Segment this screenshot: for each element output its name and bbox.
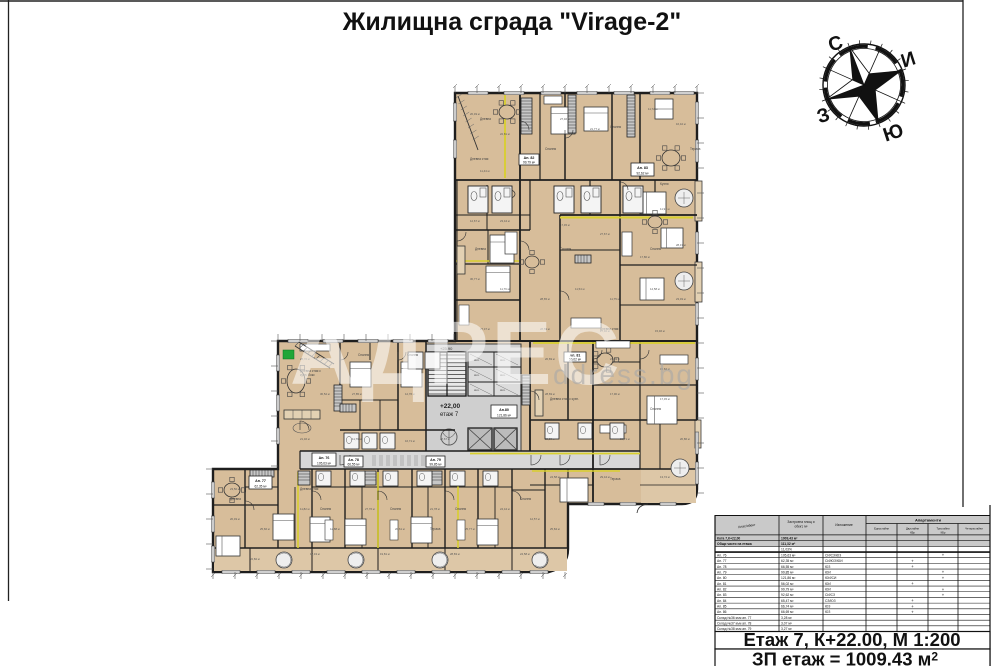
- svg-text:Ап. 79: Ап. 79: [430, 458, 441, 462]
- svg-text:3,07 м²: 3,07 м²: [781, 622, 793, 626]
- svg-text:Тераса: Тераса: [430, 527, 441, 531]
- svg-text:28,59 м: 28,59 м: [545, 437, 555, 441]
- svg-text:3,28 м²: 3,28 м²: [781, 616, 793, 620]
- svg-text:17,45 м: 17,45 м: [560, 223, 570, 227]
- svg-text:Ап. 81: Ап. 81: [717, 582, 727, 586]
- svg-text:Ап. 77: Ап. 77: [717, 559, 727, 563]
- svg-text:66,55 м²: 66,55 м²: [347, 463, 359, 467]
- svg-text:11,79 м: 11,79 м: [352, 437, 362, 441]
- svg-text:Ап. 83: Ап. 83: [637, 166, 648, 170]
- svg-text:Дневна: Дневна: [230, 497, 241, 501]
- svg-text:20,49 м: 20,49 м: [230, 517, 240, 521]
- svg-text:ЗП етаж = 1009.43 м2: ЗП етаж = 1009.43 м2: [752, 649, 938, 666]
- svg-text:11,92 м: 11,92 м: [660, 207, 670, 211]
- svg-text:ЮЗ: ЮЗ: [825, 565, 830, 569]
- svg-text:Кота 7,К+22,00: Кота 7,К+22,00: [717, 536, 740, 540]
- svg-text:Апартаменти: Апартаменти: [915, 518, 942, 523]
- svg-text:Ап. 76: Ап. 76: [319, 456, 330, 460]
- svg-text:22,81 м: 22,81 м: [500, 132, 510, 136]
- svg-text:99,79 м²: 99,79 м²: [523, 161, 535, 165]
- svg-text:92,62 м²: 92,62 м²: [781, 593, 794, 597]
- svg-text:Склад №37 към ап. 78: Склад №37 към ап. 78: [717, 622, 752, 626]
- svg-text:Застроена площ и: Застроена площ и: [787, 520, 814, 524]
- svg-text:Спалня: Спалня: [610, 125, 621, 129]
- svg-text:Дневна стая: Дневна стая: [470, 157, 489, 161]
- svg-text:Ап. 82: Ап. 82: [524, 156, 535, 160]
- svg-text:99,79 м²: 99,79 м²: [781, 587, 794, 591]
- svg-text:16,71 м: 16,71 м: [405, 439, 415, 443]
- svg-text:КБр: КБр: [910, 531, 915, 535]
- svg-text:+22,00: +22,00: [440, 403, 460, 410]
- svg-text:1009,43 м²: 1009,43 м²: [781, 536, 798, 540]
- svg-text:Ап. 77: Ап. 77: [255, 479, 266, 483]
- svg-text:Тераса: Тераса: [690, 147, 701, 151]
- svg-text:Ап. 85: Ап. 85: [717, 604, 727, 608]
- svg-text:25,84 м: 25,84 м: [550, 527, 560, 531]
- svg-text:Спалня: Спалня: [560, 247, 571, 251]
- svg-text:Дневна: Дневна: [475, 247, 486, 251]
- svg-text:Спалня: Спалня: [650, 407, 661, 411]
- svg-text:24,44 м: 24,44 м: [500, 507, 510, 511]
- svg-text:ЮИ: ЮИ: [825, 570, 831, 574]
- svg-text:ЮИ: ЮИ: [825, 587, 831, 591]
- svg-text:24,58 м: 24,58 м: [520, 552, 530, 556]
- svg-text:26,71 м: 26,71 м: [620, 437, 630, 441]
- svg-text:Двустайни: Двустайни: [906, 527, 920, 531]
- svg-text:29,44 м: 29,44 м: [600, 475, 610, 479]
- svg-text:30,77 м: 30,77 м: [470, 277, 480, 281]
- svg-text:Ап. 76: Ап. 76: [717, 553, 727, 557]
- svg-text:Ап. 80: Ап. 80: [717, 576, 727, 580]
- svg-text:23,49 м: 23,49 м: [676, 297, 686, 301]
- svg-text:121,86 м²: 121,86 м²: [781, 576, 796, 580]
- svg-text:Тераса: Тераса: [610, 477, 621, 481]
- svg-text:Общи части на етажа: Общи части на етажа: [717, 542, 752, 546]
- svg-text:Ап. 84: Ап. 84: [717, 599, 727, 603]
- svg-text:66,69 м²: 66,69 м²: [781, 610, 794, 614]
- svg-text:28,83 м: 28,83 м: [450, 552, 460, 556]
- svg-text:Ап. 83: Ап. 83: [717, 593, 727, 597]
- svg-text:11,72 м: 11,72 м: [648, 107, 658, 111]
- svg-text:25,77 м: 25,77 м: [465, 527, 475, 531]
- svg-text:Тристайни: Тристайни: [936, 527, 950, 531]
- svg-text:21,78 м: 21,78 м: [430, 507, 440, 511]
- svg-text:11,76 м: 11,76 м: [500, 287, 510, 291]
- svg-text:62,35 м²: 62,35 м²: [254, 485, 266, 489]
- svg-text:Кухня: Кухня: [660, 182, 669, 186]
- svg-text:66,55 м²: 66,55 м²: [781, 565, 794, 569]
- svg-text:Ап. 79: Ап. 79: [717, 570, 727, 574]
- svg-text:СЗ/ЮЗ: СЗ/ЮЗ: [825, 599, 836, 603]
- svg-text:Спалня: Спалня: [390, 507, 401, 511]
- svg-text:28,65 м: 28,65 м: [540, 297, 550, 301]
- svg-text:27,46 м: 27,46 м: [560, 117, 570, 121]
- svg-text:105,63 м²: 105,63 м²: [317, 462, 331, 466]
- svg-text:12,57 м: 12,57 м: [530, 517, 540, 521]
- svg-text:Дневна стая: Дневна стая: [300, 487, 319, 491]
- svg-text:Жилищна сграда "Virage-2": Жилищна сграда "Virage-2": [342, 8, 681, 36]
- svg-text:22,82 м: 22,82 м: [250, 557, 260, 561]
- svg-text:ЮИ/СИ: ЮИ/СИ: [825, 576, 837, 580]
- svg-text:25,66 м: 25,66 м: [260, 527, 270, 531]
- svg-text:99,85 м²: 99,85 м²: [781, 570, 794, 574]
- svg-text:ЮИ: ЮИ: [825, 582, 831, 586]
- svg-text:121,86 м²: 121,86 м²: [497, 414, 511, 418]
- svg-text:56,02 м²: 56,02 м²: [781, 582, 794, 586]
- svg-text:Етаж 7, К+22.00, М 1:200: Етаж 7, К+22.00, М 1:200: [743, 629, 960, 650]
- svg-text:КБр: КБр: [941, 531, 946, 535]
- svg-text:13,72 м: 13,72 м: [660, 475, 670, 479]
- svg-text:11,03%: 11,03%: [781, 548, 792, 552]
- svg-text:17,80 м: 17,80 м: [640, 255, 650, 259]
- svg-text:ddress.bg: ddress.bg: [553, 359, 694, 390]
- svg-text:Дневна: Дневна: [480, 117, 491, 121]
- svg-text:92,62 м²: 92,62 м²: [636, 172, 648, 176]
- svg-text:Спалня: Спалня: [650, 247, 661, 251]
- svg-text:Четиристайни: Четиристайни: [965, 527, 983, 531]
- svg-text:Едностайни: Едностайни: [874, 527, 889, 531]
- svg-text:Склад №36 към ап. 77: Склад №36 към ап. 77: [717, 616, 752, 620]
- svg-text:99,85 м²: 99,85 м²: [429, 463, 441, 467]
- svg-text:15,46 м: 15,46 м: [655, 329, 665, 333]
- svg-text:20,61 м: 20,61 м: [395, 527, 405, 531]
- svg-text:12,43 м: 12,43 м: [310, 552, 320, 556]
- svg-text:СИ/СЗ/ЮЗ: СИ/СЗ/ЮЗ: [825, 553, 841, 557]
- svg-text:Спалня: Спалня: [455, 507, 466, 511]
- svg-text:Ап. 78: Ап. 78: [717, 565, 727, 569]
- svg-text:ЮЗ: ЮЗ: [825, 604, 830, 608]
- svg-text:23,50 м: 23,50 м: [230, 487, 240, 491]
- svg-text:Ап.80: Ап.80: [499, 408, 509, 412]
- svg-text:Изложение: Изложение: [835, 523, 853, 527]
- svg-text:27,67 м: 27,67 м: [440, 437, 450, 441]
- svg-text:Спалня: Спалня: [545, 147, 556, 151]
- svg-text:19,81 м: 19,81 м: [380, 552, 390, 556]
- svg-text:11,82 м: 11,82 м: [300, 507, 310, 511]
- svg-text:СИ/СЗ: СИ/СЗ: [825, 593, 835, 597]
- svg-text:Ап. 78: Ап. 78: [348, 458, 359, 462]
- svg-text:105,63 м²: 105,63 м²: [781, 553, 796, 557]
- svg-text:СИ/ЮЗ/ЮИ: СИ/ЮЗ/ЮИ: [825, 559, 843, 563]
- svg-text:17,45 м: 17,45 м: [660, 397, 670, 401]
- svg-text:ЮЗ: ЮЗ: [825, 610, 830, 614]
- svg-text:111,32 м²: 111,32 м²: [781, 542, 796, 546]
- svg-text:обект, м²: обект, м²: [795, 525, 808, 529]
- svg-text:21,46 м: 21,46 м: [300, 437, 310, 441]
- svg-text:Ап. 82: Ап. 82: [717, 587, 727, 591]
- svg-text:Ап. 86: Ап. 86: [717, 610, 727, 614]
- svg-text:28,47 м: 28,47 м: [676, 243, 686, 247]
- svg-text:20,49 м: 20,49 м: [470, 112, 480, 116]
- svg-text:20,86 м: 20,86 м: [680, 437, 690, 441]
- svg-text:11,44 м: 11,44 м: [480, 169, 490, 173]
- svg-text:11,75 м: 11,75 м: [610, 297, 620, 301]
- svg-text:27,76 м: 27,76 м: [365, 507, 375, 511]
- svg-text:12,88 м: 12,88 м: [330, 527, 340, 531]
- svg-text:14,58 м: 14,58 м: [650, 287, 660, 291]
- svg-text:24,58 м: 24,58 м: [550, 475, 560, 479]
- svg-text:Спалня: Спалня: [320, 507, 331, 511]
- svg-text:65,47 м²: 65,47 м²: [781, 599, 794, 603]
- svg-text:етаж 7: етаж 7: [440, 412, 459, 418]
- svg-text:11,54 м: 11,54 м: [575, 287, 585, 291]
- svg-text:Спалня: Спалня: [520, 497, 531, 501]
- svg-text:12,67 м: 12,67 м: [470, 219, 480, 223]
- svg-text:21,77 м: 21,77 м: [590, 127, 600, 131]
- svg-text:23,44 м: 23,44 м: [500, 219, 510, 223]
- svg-text:16,42 м: 16,42 м: [676, 122, 686, 126]
- svg-text:62,35 м²: 62,35 м²: [781, 559, 794, 563]
- svg-text:27,67 м: 27,67 м: [600, 232, 610, 236]
- svg-text:66,74 м²: 66,74 м²: [781, 604, 794, 608]
